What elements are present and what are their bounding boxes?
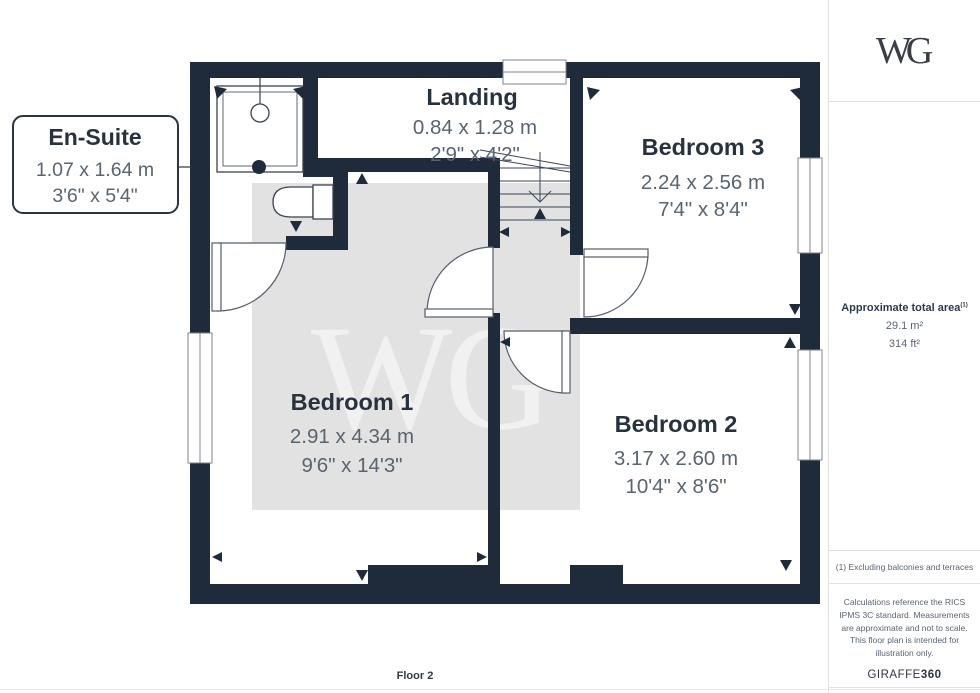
measure-arrow	[587, 87, 600, 100]
floor-label: Floor 2	[397, 670, 434, 682]
toilet-cistern-icon	[313, 185, 333, 219]
room-dim-metric: 2.24 x 2.56 m	[641, 171, 765, 194]
total-area-ft2: 314 ft²	[889, 338, 920, 350]
measure-arrow	[356, 570, 368, 581]
giraffe360-logo: GIRAFFE360	[838, 669, 971, 681]
door-swing-bedroom3	[584, 253, 648, 317]
room-label-landing: Landing	[426, 84, 517, 110]
door-leaf-bedroom2	[562, 331, 570, 393]
wall-bedroom2-step	[570, 565, 623, 604]
wall-ensuite-south	[286, 236, 348, 250]
measure-arrow	[780, 560, 792, 571]
total-area-section: Approximate total area(1) 29.1 m² 314 ft…	[829, 102, 980, 551]
brand-logo-block: WG	[829, 0, 980, 102]
room-dim-metric: 2.91 x 4.34 m	[290, 425, 414, 448]
brand-logo: WG	[876, 29, 933, 73]
door-leaf-bedroom3	[584, 249, 648, 257]
info-sidebar: WG Approximate total area(1) 29.1 m² 314…	[828, 0, 980, 693]
area-footnote: (1) Excluding balconies and terraces	[829, 551, 980, 584]
shower-head-icon	[251, 104, 269, 122]
room-dim-imperial: 10'4" x 8'6"	[625, 475, 726, 498]
floorplan-drawing: WG	[0, 0, 828, 693]
room-dim-metric: 3.17 x 2.60 m	[614, 447, 738, 470]
room-dim-imperial: 9'6" x 14'3"	[301, 454, 402, 477]
wall-bedroom3-west	[570, 62, 583, 255]
wall-bedroom2-north	[570, 318, 820, 334]
door-leaf-bedroom1	[425, 309, 493, 317]
measure-arrow	[212, 552, 222, 562]
shower-drain-icon	[252, 160, 266, 174]
room-label-bedroom1: Bedroom 1	[291, 389, 414, 415]
total-area-title-text: Approximate total area	[841, 302, 960, 314]
total-area-title: Approximate total area(1)	[841, 302, 968, 314]
giraffe360-number: 360	[921, 669, 942, 681]
toilet-bowl-icon	[273, 187, 313, 217]
wall-ensuite-east-upper	[303, 62, 318, 177]
giraffe360-name: GIRAFFE	[867, 669, 920, 681]
room-dim-metric: 0.84 x 1.28 m	[413, 116, 537, 139]
disclaimer-text: Calculations reference the RICS IPMS 3C …	[838, 596, 971, 660]
room-dim-imperial: 2'9" x 4'2"	[430, 143, 520, 166]
room-dim-imperial: 3'6" x 5'4"	[52, 185, 137, 207]
page-bottom-divider	[0, 689, 980, 690]
total-area-m2: 29.1 m²	[886, 320, 923, 332]
room-dim-metric: 1.07 x 1.64 m	[36, 159, 154, 181]
floorplan-page: WG	[0, 0, 980, 693]
measure-arrow	[356, 173, 368, 184]
room-label-ensuite: En-Suite	[48, 124, 141, 150]
wall-bedroom1-step	[368, 565, 500, 604]
measure-arrow	[477, 552, 487, 562]
wall-hall-west-upper	[488, 165, 500, 248]
wall-outer-bottom	[190, 584, 820, 604]
ensuite-callout: En-Suite 1.07 x 1.64 m 3'6" x 5'4"	[13, 116, 192, 213]
wall-bedroom1-east	[488, 313, 500, 604]
total-area-footnote-ref: (1)	[960, 302, 967, 308]
measure-arrow	[784, 337, 796, 348]
door-leaf-ensuite	[212, 243, 221, 311]
credits-section: Calculations reference the RICS IPMS 3C …	[829, 584, 980, 688]
room-label-bedroom2: Bedroom 2	[615, 411, 738, 437]
room-label-bedroom3: Bedroom 3	[642, 134, 765, 160]
measure-arrow	[789, 304, 801, 315]
room-dim-imperial: 7'4" x 8'4"	[658, 198, 748, 221]
